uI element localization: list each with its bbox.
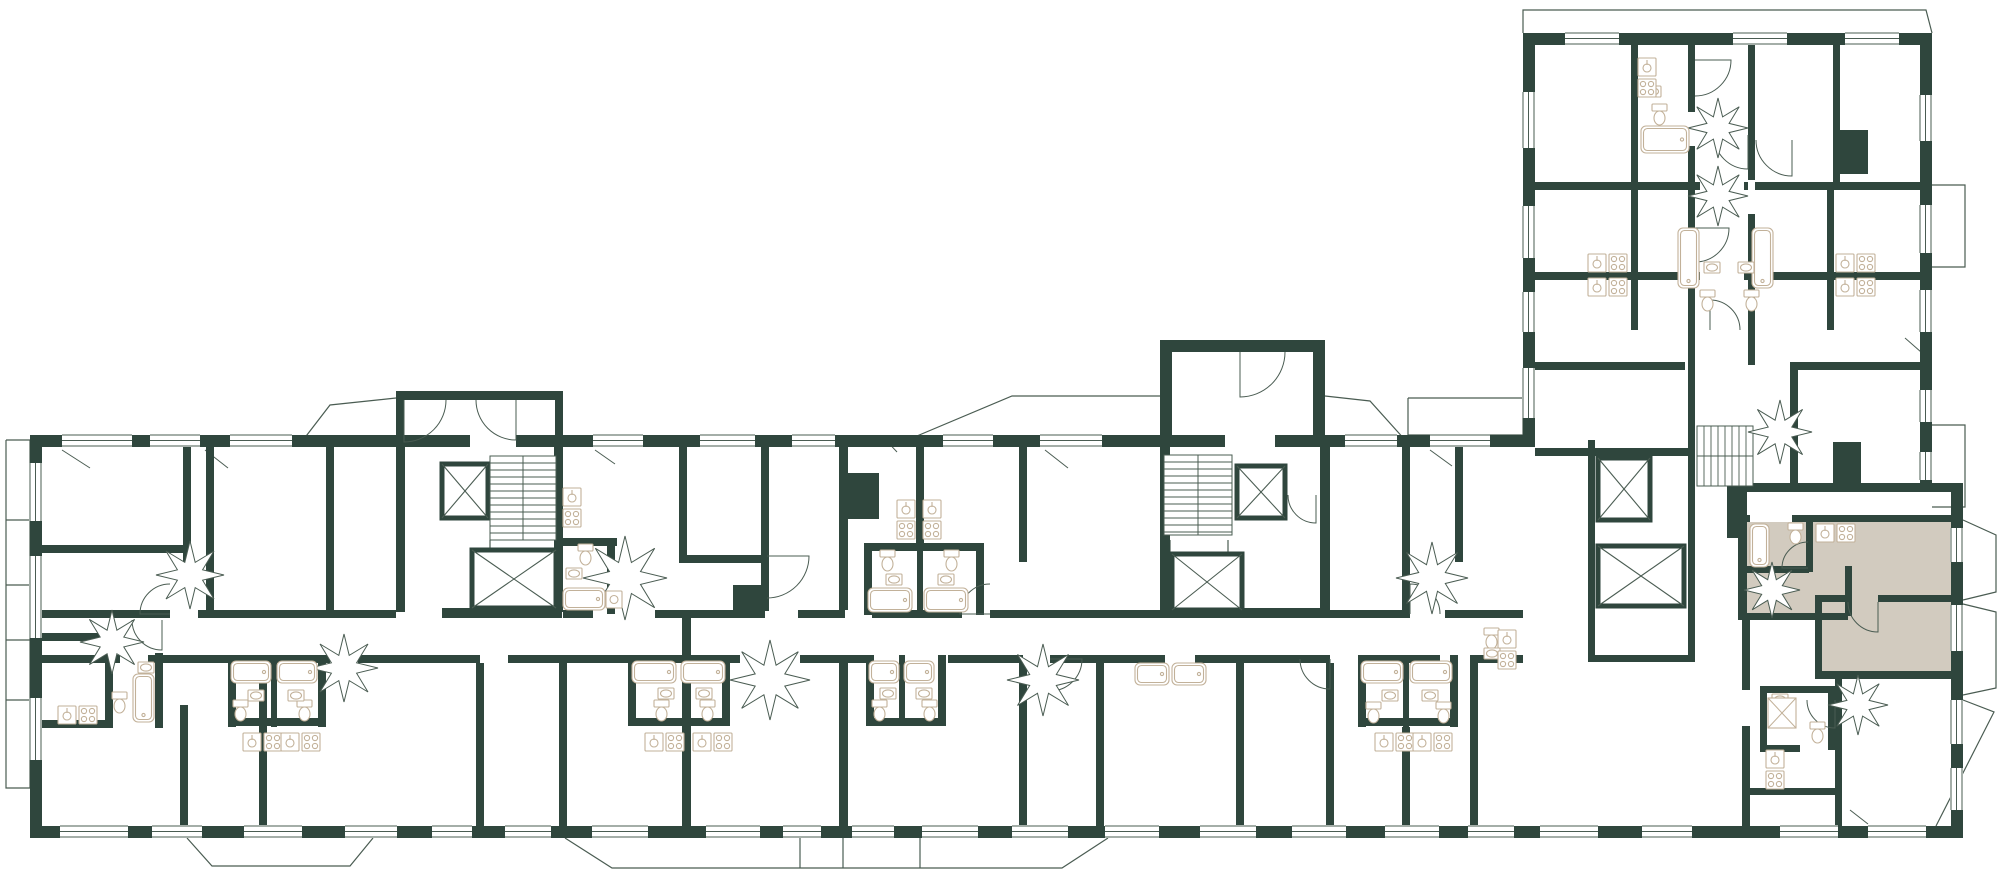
- toilet-icon: [114, 699, 125, 713]
- wall: [917, 543, 923, 615]
- wall: [1747, 788, 1839, 795]
- toilet-icon: [1810, 722, 1825, 729]
- wall: [839, 447, 848, 610]
- stove-burner-icon: [716, 743, 721, 748]
- sink-icon: [1425, 692, 1436, 699]
- wall: [628, 718, 730, 726]
- toilet-icon: [1700, 290, 1715, 297]
- toilet-icon: [872, 700, 887, 707]
- wall: [990, 610, 1160, 618]
- toilet-icon: [922, 700, 937, 707]
- stove-burner-icon: [266, 743, 271, 748]
- stove-burner-icon: [1776, 773, 1781, 778]
- toilet-icon: [1486, 635, 1497, 649]
- floor-plan-page: [0, 0, 2000, 871]
- door-opening: [470, 435, 516, 447]
- toilet-icon: [700, 700, 715, 707]
- kitchen-sink-icon: [1593, 284, 1601, 292]
- kitchen-sink-icon: [1593, 260, 1601, 268]
- bathtub-drain-icon: [262, 670, 265, 673]
- stove-burner-icon: [312, 743, 317, 748]
- sink-icon: [1487, 650, 1498, 657]
- sink-icon: [1741, 264, 1752, 271]
- stove-icon: [1857, 278, 1875, 296]
- toilet-icon: [1702, 297, 1713, 311]
- bathtub-drain-icon: [925, 670, 928, 673]
- stove-burner-icon: [1444, 735, 1449, 740]
- kitchen-sink-icon: [1771, 756, 1779, 764]
- toilet-icon: [233, 700, 248, 707]
- sink-icon: [1707, 264, 1718, 271]
- stove-burner-icon: [1867, 264, 1872, 269]
- stove-burner-icon: [81, 716, 86, 721]
- stove-burner-icon: [1611, 288, 1616, 293]
- toilet-icon: [235, 707, 246, 721]
- stove-burner-icon: [1619, 264, 1624, 269]
- washer-icon: [610, 596, 618, 604]
- wall: [476, 663, 484, 826]
- stove-burner-icon: [1839, 526, 1844, 531]
- wall: [1330, 610, 1410, 618]
- floor-plan-canvas: [0, 0, 2000, 871]
- stove-icon: [302, 733, 320, 751]
- wall: [563, 610, 593, 618]
- wall: [1740, 483, 1920, 492]
- entry-door-swing: [1828, 675, 1888, 735]
- kitchen-sink-icon: [1643, 64, 1651, 72]
- toilet-icon: [1436, 702, 1451, 709]
- wall: [396, 391, 404, 441]
- wall: [396, 391, 563, 400]
- wall: [1790, 362, 1928, 370]
- sink-icon: [661, 690, 672, 697]
- door-opening: [1748, 180, 1755, 214]
- stove-icon: [1498, 651, 1516, 669]
- bathtub-drain-icon: [1761, 279, 1764, 282]
- wall: [155, 653, 163, 728]
- bathtub-drain-icon: [1394, 670, 1397, 673]
- wall: [1470, 663, 1478, 826]
- sink-icon: [251, 692, 262, 699]
- bathtub-icon: [1755, 231, 1771, 286]
- stove-burner-icon: [1619, 256, 1624, 261]
- stove-icon: [714, 733, 732, 751]
- wall: [1402, 447, 1410, 610]
- bathtub-drain-icon: [903, 598, 906, 601]
- stove-burner-icon: [304, 735, 309, 740]
- kitchen-sink-icon: [248, 739, 256, 747]
- stove-burner-icon: [1611, 280, 1616, 285]
- kitchen-sink-icon: [1380, 739, 1388, 747]
- stove-burner-icon: [1406, 743, 1411, 748]
- toilet-icon: [1438, 709, 1449, 723]
- stove-burner-icon: [676, 743, 681, 748]
- kitchen-sink-icon: [650, 739, 658, 747]
- entry-door-swing: [156, 541, 224, 609]
- sink-icon: [1385, 692, 1396, 699]
- door-opening: [1225, 435, 1275, 447]
- stove-icon: [563, 509, 581, 527]
- kitchen-sink-icon: [286, 739, 294, 747]
- wall: [1160, 340, 1325, 352]
- kitchen-sink-icon: [698, 739, 706, 747]
- wall: [839, 663, 848, 826]
- stove-burner-icon: [933, 531, 938, 536]
- stove-burner-icon: [565, 519, 570, 524]
- wall: [679, 555, 769, 563]
- stove-burner-icon: [1619, 288, 1624, 293]
- stove-burner-icon: [1859, 256, 1864, 261]
- kitchen-sink-icon: [1503, 636, 1511, 644]
- stove-burner-icon: [573, 519, 578, 524]
- stove-burner-icon: [1444, 743, 1449, 748]
- stove-burner-icon: [899, 531, 904, 536]
- entry-door-swing: [1744, 562, 1800, 618]
- kitchen-sink-icon: [63, 712, 71, 720]
- wall: [938, 655, 946, 726]
- entry-door-swing: [730, 640, 810, 720]
- door-opening: [1750, 515, 1792, 522]
- stove-burner-icon: [724, 735, 729, 740]
- stove-icon: [666, 733, 684, 751]
- stove-burner-icon: [274, 735, 279, 740]
- stove-burner-icon: [899, 523, 904, 528]
- shaft-box: [1840, 130, 1868, 174]
- toilet-icon: [578, 544, 593, 551]
- stove-icon: [923, 521, 941, 539]
- wall: [1019, 663, 1027, 826]
- stove-burner-icon: [1776, 781, 1781, 786]
- wall: [1688, 362, 1695, 662]
- bathtub-drain-icon: [716, 670, 719, 673]
- toilet-icon: [882, 557, 893, 571]
- wall: [655, 610, 765, 618]
- wall: [1835, 678, 1842, 826]
- entry-door-swing: [1688, 166, 1748, 226]
- bathtub-drain-icon: [308, 670, 311, 673]
- toilet-icon: [1654, 111, 1665, 125]
- toilet-icon: [654, 700, 669, 707]
- entry-door-swing: [80, 610, 144, 674]
- stove-burner-icon: [724, 743, 729, 748]
- stove-burner-icon: [89, 716, 94, 721]
- stove-burner-icon: [266, 735, 271, 740]
- sink-icon: [569, 570, 580, 577]
- sink-icon: [699, 690, 710, 697]
- stove-burner-icon: [81, 708, 86, 713]
- wall: [1588, 655, 1695, 662]
- bathtub-drain-icon: [890, 670, 893, 673]
- stove-burner-icon: [1500, 661, 1505, 666]
- kitchen-sink-icon: [1418, 739, 1426, 747]
- stove-burner-icon: [907, 523, 912, 528]
- stove-burner-icon: [1839, 534, 1844, 539]
- wall: [1815, 595, 1822, 675]
- wall: [1445, 610, 1523, 618]
- wall: [1760, 686, 1767, 750]
- stove-burner-icon: [274, 743, 279, 748]
- wall: [1019, 447, 1027, 562]
- stove-burner-icon: [1859, 280, 1864, 285]
- toilet-icon: [946, 557, 957, 571]
- bathtub-drain-icon: [142, 713, 145, 716]
- entry-door-swing: [310, 634, 378, 702]
- stove-icon: [897, 521, 915, 539]
- stove-icon: [1609, 254, 1627, 272]
- stove-burner-icon: [1867, 256, 1872, 261]
- kitchen-sink-icon: [1841, 284, 1849, 292]
- stove-burner-icon: [1768, 773, 1773, 778]
- bathtub-drain-icon: [1160, 672, 1163, 675]
- wall: [1806, 522, 1813, 572]
- toilet-icon: [1744, 290, 1759, 297]
- stove-icon: [1638, 79, 1656, 97]
- stove-icon: [1609, 278, 1627, 296]
- stove-burner-icon: [1847, 526, 1852, 531]
- wall: [1815, 671, 1963, 679]
- stove-burner-icon: [1619, 280, 1624, 285]
- stove-burner-icon: [1648, 89, 1653, 94]
- wall: [1588, 440, 1595, 662]
- shaft-box: [1727, 478, 1745, 538]
- stove-burner-icon: [1508, 661, 1513, 666]
- stove-burner-icon: [1768, 781, 1773, 786]
- stove-burner-icon: [1398, 735, 1403, 740]
- toilet-icon: [1790, 530, 1801, 544]
- wall: [206, 447, 214, 610]
- wall: [1760, 686, 1832, 693]
- stove-burner-icon: [1611, 256, 1616, 261]
- toilet-icon: [112, 692, 127, 699]
- toilet-icon: [299, 707, 310, 721]
- bathtub-drain-icon: [1443, 670, 1446, 673]
- wall: [800, 655, 868, 663]
- toilet-icon: [656, 707, 667, 721]
- wall: [1535, 448, 1688, 456]
- stove-burner-icon: [1406, 735, 1411, 740]
- wall: [559, 663, 567, 826]
- stove-icon: [1857, 254, 1875, 272]
- bathtub-drain-icon: [1758, 558, 1761, 561]
- bathtub-drain-icon: [959, 598, 962, 601]
- stove-icon: [264, 733, 282, 751]
- wall: [1828, 686, 1835, 750]
- wall: [798, 610, 845, 618]
- bathtub-drain-icon: [596, 597, 599, 600]
- stove-burner-icon: [1867, 288, 1872, 293]
- stove-burner-icon: [925, 531, 930, 536]
- kitchen-sink-icon: [1821, 530, 1829, 538]
- sink-icon: [291, 692, 302, 699]
- toilet-icon: [1812, 729, 1823, 743]
- wall: [1096, 663, 1104, 826]
- stove-burner-icon: [907, 531, 912, 536]
- toilet-icon: [924, 707, 935, 721]
- stove-burner-icon: [668, 743, 673, 748]
- stove-burner-icon: [1436, 743, 1441, 748]
- wall: [948, 655, 1023, 663]
- stove-burner-icon: [1640, 81, 1645, 86]
- stove-burner-icon: [933, 523, 938, 528]
- wall: [1195, 655, 1330, 663]
- sink-icon: [919, 690, 930, 697]
- stove-burner-icon: [1859, 288, 1864, 293]
- wall: [1631, 45, 1638, 182]
- wall: [1160, 340, 1172, 438]
- stove-burner-icon: [925, 523, 930, 528]
- bathtub-drain-icon: [667, 670, 670, 673]
- kitchen-sink-icon: [902, 506, 910, 514]
- toilet-icon: [944, 550, 959, 557]
- kitchen-sink-icon: [568, 494, 576, 502]
- bathtub-drain-icon: [1687, 279, 1690, 282]
- wall: [198, 610, 396, 618]
- stove-icon: [1837, 524, 1855, 542]
- toilet-icon: [580, 551, 591, 565]
- bathtub-drain-icon: [1680, 138, 1683, 141]
- wall: [1403, 655, 1409, 727]
- stove-burner-icon: [1867, 280, 1872, 285]
- stove-burner-icon: [1611, 264, 1616, 269]
- toilet-icon: [1788, 523, 1803, 530]
- door-opening: [1700, 362, 1744, 370]
- stove-burner-icon: [1640, 89, 1645, 94]
- wall: [1313, 340, 1325, 438]
- shaft-box: [1833, 442, 1861, 488]
- wall: [1738, 613, 1848, 620]
- wall: [396, 447, 405, 612]
- stove-burner-icon: [716, 735, 721, 740]
- wall: [271, 655, 277, 727]
- stove-burner-icon: [668, 735, 673, 740]
- sink-icon: [941, 576, 952, 583]
- kitchen-sink-icon: [1841, 260, 1849, 268]
- entry-door-swing: [1748, 400, 1812, 464]
- bathtub-drain-icon: [1197, 672, 1200, 675]
- wall: [555, 391, 563, 441]
- toilet-icon: [1368, 709, 1379, 723]
- wall: [358, 655, 480, 663]
- toilet-icon: [1652, 104, 1667, 111]
- entry-door-swing: [1396, 542, 1468, 614]
- door-opening: [1742, 690, 1750, 726]
- stove-burner-icon: [1436, 735, 1441, 740]
- stove-icon: [1434, 733, 1452, 751]
- wall: [1236, 663, 1244, 826]
- wall: [1827, 190, 1834, 330]
- toilet-icon: [874, 707, 885, 721]
- stove-icon: [1766, 771, 1784, 789]
- stove-icon: [1396, 733, 1414, 751]
- stove-burner-icon: [676, 735, 681, 740]
- wall: [1631, 190, 1638, 330]
- wall: [976, 543, 984, 615]
- stove-burner-icon: [1847, 534, 1852, 539]
- wall: [1878, 595, 1954, 602]
- wall: [1320, 447, 1330, 612]
- toilet-icon: [1366, 702, 1381, 709]
- stove-burner-icon: [89, 708, 94, 713]
- stove-burner-icon: [573, 511, 578, 516]
- stove-burner-icon: [1859, 264, 1864, 269]
- stove-burner-icon: [565, 511, 570, 516]
- stove-burner-icon: [1500, 653, 1505, 658]
- kitchen-sink-icon: [928, 506, 936, 514]
- stove-burner-icon: [312, 735, 317, 740]
- toilet-icon: [702, 707, 713, 721]
- shaft-box: [845, 473, 879, 519]
- sink-icon: [889, 576, 900, 583]
- wall: [1833, 45, 1840, 182]
- wall: [1455, 447, 1463, 562]
- sink-icon: [141, 664, 152, 671]
- entry-door-swing: [1688, 98, 1748, 158]
- stove-burner-icon: [1508, 653, 1513, 658]
- stove-burner-icon: [1398, 743, 1403, 748]
- stove-burner-icon: [304, 743, 309, 748]
- stove-burner-icon: [1648, 81, 1653, 86]
- wall: [679, 447, 687, 562]
- entry-door-swing: [1007, 644, 1079, 716]
- wall: [326, 447, 334, 610]
- shaft-box: [733, 585, 769, 611]
- toilet-icon: [1484, 628, 1499, 635]
- toilet-icon: [880, 550, 895, 557]
- toilet-icon: [1746, 297, 1757, 311]
- wall: [180, 705, 188, 826]
- stove-icon: [79, 706, 97, 724]
- wall: [1535, 362, 1685, 370]
- bathtub-icon: [1681, 231, 1697, 286]
- wall: [1688, 45, 1695, 365]
- sink-icon: [883, 690, 894, 697]
